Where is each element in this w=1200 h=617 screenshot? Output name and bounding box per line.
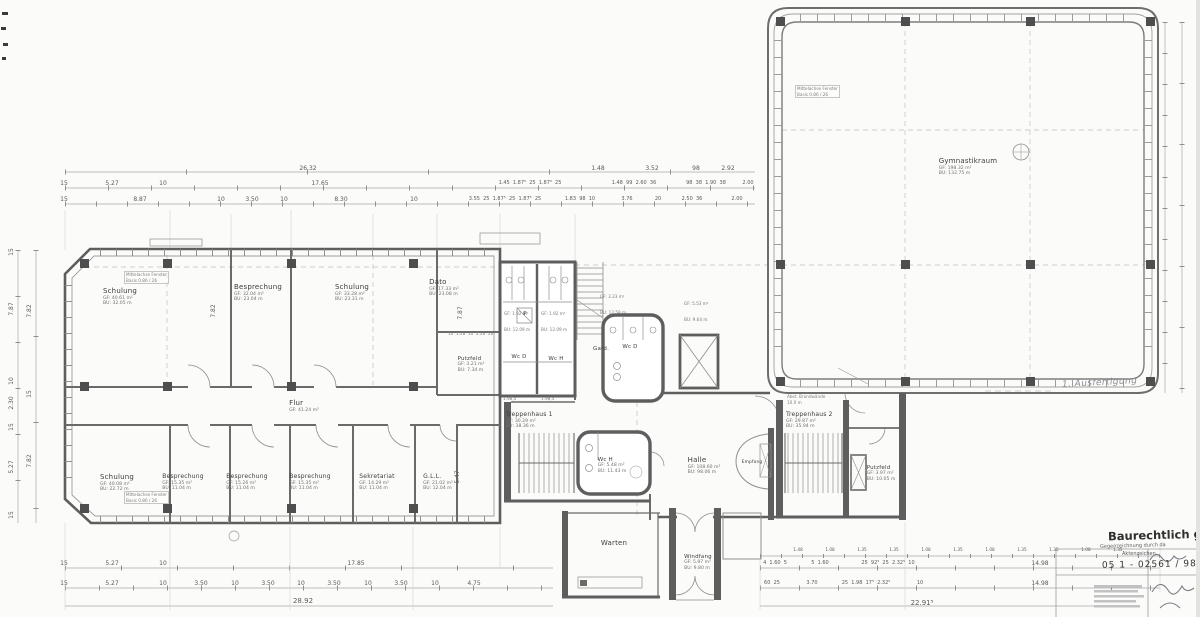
dim-label: 25 1.98 17⁵ 2.32⁵ — [842, 581, 891, 586]
dim-label: 2.92 — [721, 166, 734, 172]
scan-noise — [1, 12, 8, 60]
room-name: Gymnastikraum — [939, 158, 998, 166]
room-name: Dato — [429, 279, 459, 287]
room-label-halle: Halle GF: 108.60 m² BU: 98.06 m — [688, 457, 721, 476]
room-label-gll: G.L.L. GF: 21.02 m² BU: 12.04 m — [423, 474, 453, 492]
room-perimeter: BU: 12.58 m — [600, 310, 626, 315]
room-label-schulung-bottom: Schulung GF: 40.08 m² BU: 22.72 m — [100, 474, 134, 493]
dim-label: 10 — [410, 197, 418, 203]
room-name: Besprechung — [234, 284, 282, 292]
room-label-besprechung-3: Besprechung GF: 15.35 m² BU: 11.04 m — [289, 474, 330, 492]
dato-micro-dims: 10 1.28 10 2.26 26 — [448, 331, 493, 336]
dim-label: 15 — [60, 197, 68, 203]
dim-label: 15 — [27, 390, 33, 398]
room-perimeter: BU: 11.04 m — [289, 486, 330, 492]
room-label-schulung-top-mid: Schulung GF: 33.28 m² BU: 23.31 m — [335, 284, 369, 303]
room-perimeter: BU: 10.05 m — [867, 477, 896, 483]
room-perimeter: BU: 38.36 m — [506, 424, 553, 430]
gym-walls — [768, 8, 1158, 393]
note-line: Mittelachse Fenster — [797, 86, 838, 92]
dim-label: 15 — [9, 248, 15, 256]
sheet-edge-shadow — [1196, 0, 1200, 617]
dim-label: 15 — [60, 561, 68, 567]
room-perimeter: BU: 23.31 m — [335, 297, 369, 303]
dim-label: 10 — [280, 197, 288, 203]
room-perimeter: BU: 132.75 m — [939, 171, 998, 177]
window-axis-note: Mittelachse Fenster Basis 0.86 /.26 — [795, 85, 840, 98]
room-area: GF: 3.97 m² — [867, 471, 896, 477]
warten-walls — [562, 511, 660, 598]
room-label-gymnastikraum: Gymnastikraum GF: 198.32 m² BU: 132.75 m — [939, 158, 998, 177]
room-name: Schulung — [103, 288, 137, 296]
room-name: Treppenhaus 2 — [786, 412, 833, 419]
dim-label: 5.27 — [105, 561, 118, 567]
dim-label: 25 92⁵ 25 2.32⁵ 10 — [861, 561, 914, 566]
dim-label: 2.50 36 — [682, 197, 703, 202]
dim-label: 20 — [655, 197, 661, 202]
note-line: 10.0 m — [787, 400, 825, 406]
room-name: Gard. — [593, 346, 609, 352]
room-label-wc-h-low: Wc H GF: 5.48 m² BU: 11.43 m — [598, 457, 627, 475]
elevator-shaft — [680, 335, 718, 388]
room-perimeter: BU: 23.04 m — [234, 297, 282, 303]
dim-label: 8.87 — [133, 197, 146, 203]
room-label-schulung-top: Schulung GF: 40.61 m² BU: 32.05 m — [103, 288, 137, 307]
room-area: GF: 5.97 m² — [684, 560, 712, 566]
dim-label: 3.50 — [261, 581, 274, 587]
room-label-p-shaft: P — [523, 311, 527, 317]
room-area: GF: 41.24 m² — [289, 408, 319, 414]
dim-label: 14.98 — [1031, 581, 1048, 587]
room-name: Sekretariat — [359, 474, 394, 481]
window-axis-note: Mittelachse Fenster Basis 0.86 /.26 — [124, 271, 169, 284]
room-name: G.L.L. — [423, 474, 453, 481]
dim-label: 17.65 — [311, 181, 328, 187]
reference-bubble — [229, 531, 239, 541]
room-area: GF: 5.53 m² — [684, 301, 708, 306]
room-name: Treppenhaus 1 — [506, 412, 553, 419]
dim-label: 1.48 99 2.60 36 — [612, 181, 657, 186]
dim-label: 10 — [297, 581, 305, 587]
dim-total-label: 28.92 — [293, 598, 313, 605]
dim-label: 17.85 — [347, 561, 364, 567]
windfang-walls — [669, 508, 761, 600]
room-perimeter: BU: 11.04 m — [162, 486, 203, 492]
dim-label: 15 — [60, 581, 68, 587]
wc-d-mid-areas: GF: 3.23 m² BU: 12.58 m — [600, 283, 626, 321]
dim-label: 3.52 — [645, 166, 658, 172]
dim-label: 5.47 — [455, 470, 461, 483]
dim-label: 15 — [60, 181, 68, 187]
dim-label: 1.45 1.87⁵ 25 1.87⁵ 25 — [499, 181, 562, 186]
room-perimeter: BU: 12.04 m — [423, 486, 453, 492]
dim-label: 10 — [431, 581, 439, 587]
dim-label: 14.98 — [1031, 561, 1048, 567]
room-label-sekretariat: Sekretariat GF: 14.29 m² BU: 11.04 m — [359, 474, 394, 492]
dim-label: 10 — [9, 377, 15, 385]
room-name: Besprechung — [226, 474, 267, 481]
room-label-treppenhaus-2: Treppenhaus 2 GF: 29.87 m² BU: 35.94 m — [786, 412, 833, 430]
gym-window-ticks — [778, 18, 1148, 383]
dim-label: 10 — [364, 581, 372, 587]
dim-label: 5.27 — [105, 581, 118, 587]
room-name: Besprechung — [289, 474, 330, 481]
dim-label: 2.00 — [731, 197, 742, 202]
note-line: Basis 0.86 /.26 — [126, 498, 167, 504]
firewall-note: Abst. Brandwände 10.0 m — [786, 394, 826, 405]
dim-label: 98 38 1.90 38 — [686, 181, 726, 186]
drain-symbol — [1013, 144, 1029, 160]
room-perimeter: BU: 32.05 m — [103, 301, 137, 307]
dim-label: 5 1.60 — [811, 561, 829, 566]
room-label-wc-d-mid: Wc D — [622, 344, 637, 350]
room-perimeter: BU: 7.34 m — [458, 368, 485, 374]
dim-label: 15 — [9, 511, 15, 519]
room-area: GF: 5.48 m² — [598, 463, 627, 469]
fine-print-bars — [1094, 585, 1144, 608]
dim-label: 10 — [159, 581, 167, 587]
room-perimeter: BU: 23.08 m — [429, 292, 459, 298]
room-perimeter: BU: 12.09 m — [504, 327, 530, 332]
dim-label: 3.50 — [245, 197, 258, 203]
floorplan-sheet: Schulung GF: 40.61 m² BU: 32.05 m Bespre… — [0, 0, 1200, 617]
dim-label: 4 1.60 5 — [763, 561, 787, 566]
dim-label: 5.27 — [9, 460, 15, 473]
dim-label: 3.76 — [621, 197, 632, 202]
wc-micro-dim: 1.98,5 — [541, 396, 554, 401]
room-name: Schulung — [335, 284, 369, 292]
room-name: Halle — [688, 457, 721, 465]
room-perimeter: BU: 11.04 m — [226, 486, 267, 492]
dim-label: 3.70 — [806, 581, 817, 586]
dim-total-label: 22.91⁵ — [911, 600, 934, 607]
dim-label: 8.30 — [334, 197, 347, 203]
note-line: Basis 0.86 /.26 — [126, 278, 167, 284]
room-perimeter: BU: 12.09 m — [541, 327, 567, 332]
dim-label: 10 — [917, 581, 923, 586]
dim-label: 10 — [159, 561, 167, 567]
wc-d-mid-room — [603, 315, 663, 401]
dim-label: 2.00 — [742, 181, 753, 186]
note-line: Basis 0.86 /.26 — [797, 92, 838, 98]
dim-label: 10 — [217, 197, 225, 203]
room-label-besprechung-2: Besprechung GF: 15.26 m² BU: 11.04 m — [226, 474, 267, 492]
dim-label: 3.50 — [194, 581, 207, 587]
wc-d-top-areas: GF: 1.92 m² BU: 12.09 m — [504, 300, 530, 338]
dim-label: 10 — [159, 181, 167, 187]
room-name: Empfang — [742, 461, 763, 466]
room-name: Wc D — [622, 344, 637, 350]
dim-label: 60 25 — [764, 581, 780, 586]
dim-label: 1.48 — [591, 166, 604, 172]
dim-label: 3.50 — [327, 581, 340, 587]
dim-label: 3.55 25 1.87⁵ 25 1.87⁵ 25 — [469, 197, 541, 202]
room-label-wc-h-top: Wc H — [548, 356, 563, 362]
dim-label: 15 — [9, 423, 15, 431]
dim-label: 7.87 — [9, 302, 15, 315]
dim-label: 10 — [231, 581, 239, 587]
room-name: P — [523, 311, 527, 317]
dim-label: 5.27 — [105, 181, 118, 187]
room-perimeter: BU: 11.04 m — [359, 486, 394, 492]
dim-label: 98 — [692, 166, 700, 172]
dim-label: 26.32 — [299, 166, 316, 172]
room-area: GF: 1.92 m² — [541, 311, 567, 316]
room-label-besprechung-1: Besprechung GF: 15.35 m² BU: 11.04 m — [162, 474, 203, 492]
room-perimeter: BU: 35.94 m — [786, 424, 833, 430]
dim-micro-row: 1.48 1.08 1.35 1.35 1.08 1.35 1.08 1.35 … — [793, 548, 1122, 552]
room-name: Flur — [289, 400, 319, 408]
note-line: Mittelachse Fenster — [126, 272, 167, 278]
wc-micro-dim: 1.98,5 — [503, 396, 516, 401]
room-label-treppenhaus-1: Treppenhaus 1 GF: 30.29 m² BU: 38.36 m — [506, 412, 553, 430]
room-label-wc-d-top: Wc D — [511, 354, 526, 360]
approval-stamp-aktenzeichen: Aktenzeichen — [1122, 551, 1156, 557]
dim-label: 1.83 98 10 — [565, 197, 595, 202]
room-name: Warten — [601, 540, 627, 548]
room-label-empfang: Empfang — [742, 461, 763, 466]
room-label-dato: Dato GF: 17.33 m² BU: 23.08 m — [429, 279, 459, 298]
room-name: Besprechung — [162, 474, 203, 481]
room-perimeter: BU: 22.72 m — [100, 487, 134, 493]
room-perimeter: BU: 98.06 m — [688, 470, 721, 476]
note-line: Abst. Brandwände — [787, 394, 825, 400]
dim-label: 4.75 — [467, 581, 480, 587]
room-area: GF: 3.21 m² — [458, 362, 485, 368]
dim-label: 7.82 — [211, 304, 217, 317]
dim-label: 2.30 — [9, 396, 15, 409]
elevator-areas: GF: 5.53 m² BU: 9.64 m — [684, 290, 708, 328]
room-label-windfang: Windfang GF: 5.97 m² BU: 9.80 m — [684, 554, 712, 572]
dim-label: 7.82 — [27, 454, 33, 467]
wc-h-top-areas: GF: 1.92 m² BU: 12.09 m — [541, 300, 567, 338]
room-perimeter: BU: 11.43 m — [598, 469, 627, 475]
dim-label: 3.50 — [394, 581, 407, 587]
room-label-flur: Flur GF: 41.24 m² — [289, 400, 319, 413]
room-label-putzfeld-right: Putzfeld GF: 3.97 m² BU: 10.05 m — [867, 465, 896, 483]
room-area: GF: 3.23 m² — [600, 294, 626, 299]
room-label-putzfeld-left: Putzfeld GF: 3.21 m² BU: 7.34 m — [458, 356, 485, 374]
window-symbol — [150, 239, 202, 246]
room-name: Wc D — [511, 354, 526, 360]
approval-stamp-number: 05 1 - 02561 / 98 — [1102, 559, 1197, 571]
dim-label: 7.87 — [458, 306, 464, 319]
room-label-besprechung-top: Besprechung GF: 32.04 m² BU: 23.04 m — [234, 284, 282, 303]
dim-label: 7.82 — [27, 304, 33, 317]
room-label-gard: Gard. — [593, 346, 609, 352]
window-symbol — [480, 233, 540, 244]
room-perimeter: BU: 9.64 m — [684, 317, 708, 322]
room-perimeter: BU: 9.80 m — [684, 566, 712, 572]
room-name: Wc H — [548, 356, 563, 362]
room-name: Schulung — [100, 474, 134, 482]
room-label-warten: Warten — [601, 540, 627, 548]
approval-stamp-title: Baurechtlich ge — [1108, 527, 1200, 544]
note-leader-line — [838, 368, 868, 384]
